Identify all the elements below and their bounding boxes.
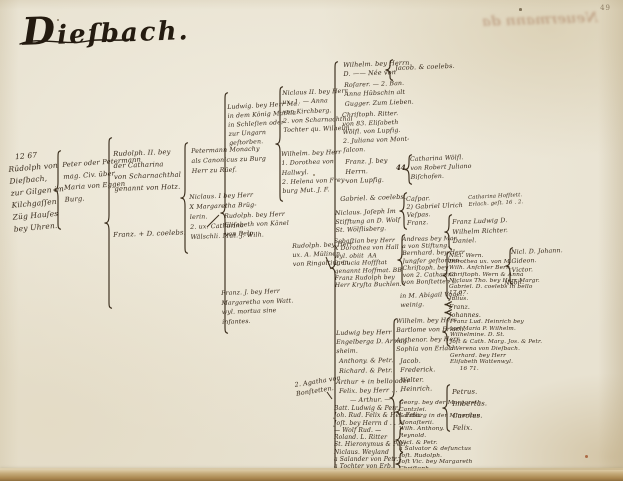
tree-entry-gen7-christoph: Chriſtoph. Ritter.von 83. EliſabethWölfl… — [342, 110, 410, 156]
brace-gen2 — [103, 137, 113, 309]
tree-entry-line: Petrus. — [452, 385, 487, 398]
tree-entry-line: Daniel. — [453, 235, 509, 246]
reference-mark: 44 — [396, 163, 406, 172]
connector-stroke — [206, 214, 220, 228]
brace-nicl-johann — [504, 247, 514, 285]
tree-entry-gen5-rudolph: Rudolph. bey HerrEliſabeth von Känelvon … — [224, 210, 289, 239]
tree-entry-line: Imbertus. — [452, 397, 487, 410]
brace-heinrich — [441, 317, 451, 347]
tree-entry-gen9-heinrich-group: Franz Lud. Heinrich beyvon Maria P. Wilh… — [450, 319, 542, 373]
tree-entry-line: 16 71. — [450, 366, 542, 373]
tree-entry-line: Carolus. — [452, 409, 487, 422]
tree-entry-line: Richard. & Petr. — [339, 367, 393, 376]
tree-entry-line: Franz. J. bey — [345, 157, 388, 168]
tree-entry-line: Erlach. geſt. 16 . 2. — [468, 199, 523, 209]
tree-entry-line: — Arthur. — — [350, 396, 391, 405]
connector-stroke — [326, 391, 333, 400]
tree-entry-gen7-franz: Franz. J. beyHerrn.von Lupfig. — [345, 157, 388, 187]
brace-johannes-sm — [443, 309, 453, 316]
brace-georg-1 — [394, 399, 404, 425]
ink-speck — [57, 19, 59, 21]
tree-entry-line: Arthur + in bello oder — [336, 378, 410, 387]
tree-entry-gen3-franz-coelebs: Franz. + D. coelebs. — [113, 228, 186, 240]
tree-entry-gen7-arthur-bello: Arthur + in bello oder — [336, 378, 410, 387]
tree-entry-gen3-rudolph-ii: Rudolph. II. beyder Catharinavon Scharna… — [113, 147, 182, 195]
tree-entry-line: von Maria P. Wilhelm. — [450, 326, 542, 333]
tree-entry-line: Frederick. — [400, 366, 435, 376]
tree-entry-gen5-franz: Franz. J. bey HerrMargaretha von Watt.wy… — [221, 286, 294, 326]
tree-entry-gen7-niclaus-joseph: Niclaus. Joſeph ImStifftung an D. WolfSt… — [335, 208, 401, 236]
brace-gen5 — [274, 86, 284, 202]
tree-entry-line: Franz Lud. Heinrich bey — [450, 319, 542, 326]
tree-entry-line: Joſt & Cath. Marg. Jos. & Petr. — [450, 339, 542, 346]
tree-entry-gen7-gabriel: Gabriel. & coelebs. — [340, 193, 406, 204]
tree-entry-line: Joſt Vic. bey Margareth — [399, 459, 481, 466]
brace-niclaus-group — [441, 251, 451, 300]
tree-entry-line: Felix. — [453, 421, 488, 434]
tree-entry-gen7-anthony: Anthony. & Petr. — [339, 357, 393, 366]
tree-entry-gen8-sons: Jacob.Frederick.Walter.Heinrich. — [400, 356, 436, 394]
tree-entry-line: Herr zu Rüef. — [192, 164, 267, 177]
brace-gen1 — [52, 150, 62, 230]
tree-entry-line: Nicl. D. Johann. — [511, 247, 563, 258]
tree-entry-gen9-franz-ludwig: Franz Ludwig D.Wilhelm Richter.Daniel. — [452, 216, 508, 246]
tree-entry-line: genannt von Hotz. — [114, 181, 181, 195]
tree-entry-line: Nicl. & Petr. — [399, 440, 481, 447]
tree-entry-line: von Lupfig. — [346, 176, 389, 187]
tree-entry-line: Wilhelm Richter. — [452, 226, 508, 237]
tree-entry-line: infantes. — [222, 315, 294, 327]
paper-bottom-edge — [0, 470, 623, 481]
genealogy-chart: 12 67Rüdolph vonDieſbach,zur Gilgen imKi… — [0, 0, 623, 481]
tree-entry-line: von Belp. — [225, 228, 290, 239]
ink-speck — [585, 455, 588, 458]
brace-franz-ludwig — [443, 214, 453, 250]
ink-speck — [519, 8, 522, 11]
tree-entry-gen9-note-catharina: Catharina Hofſtett.Erlach. geſt. 16 . 2. — [468, 192, 524, 209]
tree-entry-line: St. Wölflisberg. — [336, 225, 401, 236]
brace-andreas — [396, 234, 406, 286]
tree-entry-gen8-jacob-coelebs: Jacob. & coelebs. — [395, 62, 455, 73]
brace-gen3 — [179, 142, 189, 254]
tree-entry-gen7-richard: Richard. & Petr. — [339, 367, 393, 376]
tree-entry-line: Gugger. Zum Lieben. — [345, 97, 414, 109]
brace-gen4 — [219, 92, 229, 334]
tree-entry-line: Jacob. & coelebs. — [395, 62, 455, 73]
tree-entry-line: Herr Kryſta Buchlen. — [335, 281, 402, 290]
tree-entry-line: Gerhard. bey Herr — [450, 353, 542, 360]
tree-entry-line: Heinrich. — [400, 384, 435, 394]
tree-entry-line: falcon. — [343, 144, 410, 155]
tree-entry-line: Victor. — [512, 265, 564, 276]
tree-entry-line: a Verena von Dieſbach. — [450, 346, 542, 353]
tree-entry-line: Franz. + D. coelebs. — [113, 228, 186, 240]
tree-entry-line: Gabriel. & coelebs. — [340, 193, 406, 204]
tree-entry-line: a Salvator & defunctus — [399, 446, 481, 453]
manuscript-page: Dieſbach. 49 Neuermann da 12 67Rüdolph v… — [0, 0, 623, 481]
tree-entry-gen7-rosarer: Roſarer. — 2. Ban.Anna Hübschin altGugge… — [344, 79, 414, 109]
tree-entry-line: Reynold. — [399, 433, 481, 440]
connector-stroke — [325, 256, 332, 270]
tree-entry-gen9-franz-johannes: Franz.Johannes. — [449, 304, 481, 320]
tree-entry-line: Anthony. & Petr. — [339, 357, 393, 366]
tree-entry-gen10-nicl-johann: Nicl. D. Johann.Gideon.Victor. — [511, 247, 564, 275]
brace-georg-2 — [394, 427, 404, 453]
tree-entry-line: Eliſabeth Wattenwyl. — [450, 359, 542, 366]
tree-entry-line: Joſt. Rudolph. — [399, 453, 481, 460]
tree-entry-line: Wilhelmine. D. St. — [450, 332, 542, 339]
tree-entry-gen9-petrus-group: Petrus.Imbertus.Carolus.Felix. — [452, 385, 488, 434]
brace-franz-sm — [443, 301, 453, 308]
tree-entry-gen8-catharina: Catharina Wölfl.von Robert JulianoBiſcho… — [410, 154, 472, 183]
tree-entry-gen7-arthur: — Arthur. — — [350, 396, 391, 405]
ink-speck — [313, 174, 315, 176]
brace-jacob — [384, 59, 394, 81]
tree-entry-line: Biſchofen. — [411, 171, 472, 182]
tree-entry-gen7-sebastian: Sebaſtian bey HerrX Dorothea von Hallwyl… — [334, 237, 402, 290]
tree-entry-line: Franz. — [449, 304, 481, 312]
tree-entry-line: Rudolph. II. bey — [113, 147, 180, 161]
brace-caspar — [398, 192, 408, 230]
brace-petrus — [441, 384, 451, 432]
tree-entry-line: Julius. — [449, 296, 540, 302]
